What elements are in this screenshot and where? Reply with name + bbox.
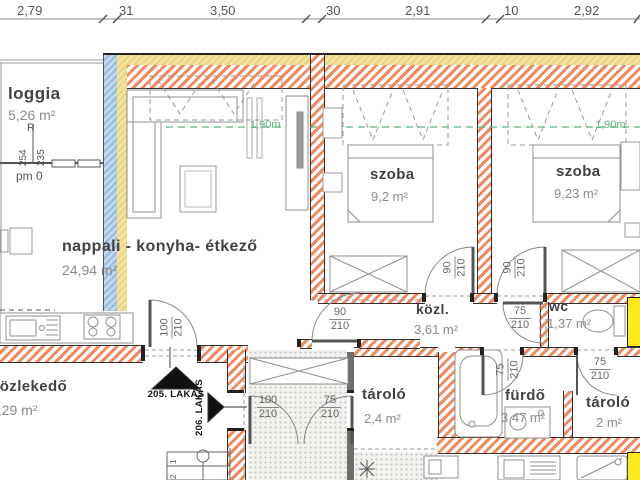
overhead-cabinet-szoba2 — [508, 85, 626, 145]
room-label-kozl: közl. — [416, 301, 449, 317]
height-label-2: 1,90m — [595, 119, 626, 131]
nightstand-szoba1 — [323, 108, 342, 192]
room-area-nappali: 24,94 m² — [62, 262, 117, 278]
dim-10: 10 — [504, 3, 518, 18]
stair-number-1: 1 — [169, 453, 178, 464]
door-label-nappali-kozl: 90210 — [326, 306, 354, 333]
height-label-1: 1,90m — [250, 119, 281, 131]
loggia-railing — [0, 125, 103, 310]
dim-2-92: 2,92 — [574, 3, 599, 18]
arrow-205 — [152, 367, 200, 389]
dim-3-50: 3,50 — [210, 3, 235, 18]
door-label-tarolo2: 75210 — [586, 356, 614, 383]
tv-cabinet — [286, 96, 308, 210]
wardrobe-vestibule — [250, 358, 348, 384]
dim-2-79: 2,79 — [17, 3, 42, 18]
wardrobe-szoba2 — [562, 250, 640, 292]
room-area-loggia: 5,26 m² — [8, 107, 55, 123]
door-label-wc: 75210 — [506, 305, 534, 332]
room-label-wc: wc — [549, 298, 568, 314]
level-235: 235 — [36, 134, 47, 166]
dim-2-91: 2,91 — [405, 3, 430, 18]
dim-31: 31 — [119, 3, 133, 18]
door-label-entry205: 100210 — [159, 308, 186, 348]
room-label-tarolo2: tároló — [586, 394, 630, 411]
door-label-szoba2: 90210 — [502, 248, 529, 288]
room-area-furdo: 3,47 m² — [501, 410, 545, 425]
dim-30: 30 — [326, 3, 340, 18]
room-area-kozl: 3,61 m² — [414, 322, 458, 337]
level-marker-r: R — [27, 122, 35, 134]
room-label-loggia: loggia — [8, 84, 60, 104]
room-area-tarolo1: 2,4 m² — [364, 411, 401, 426]
stair-number-2: 2 — [169, 468, 178, 479]
room-label-szoba1: szoba — [370, 166, 415, 183]
wardrobe-szoba1 — [330, 256, 407, 292]
neighbor-kitchen — [498, 456, 560, 480]
room-label-furdo: fürdő — [505, 387, 545, 404]
room-area-szoba1: 9,2 m² — [371, 189, 408, 204]
neighbor-washer — [577, 456, 627, 480]
room-area-szoba2: 9,23 m² — [554, 186, 598, 201]
door-label-vest-left: 100210 — [254, 394, 282, 421]
room-label-tarolo1: tároló — [362, 386, 406, 403]
room-label-kozlekedo: közlekedő — [0, 378, 67, 395]
door-label-vest-right: 75210 — [316, 394, 344, 421]
room-area-kozlekedo: 6,29 m² — [0, 402, 37, 418]
room-area-tarolo2: 2 m² — [596, 415, 622, 430]
apartment-label-206: 206. LAKÁS — [194, 382, 205, 436]
cooktop — [84, 315, 120, 339]
nightstand-szoba2 — [621, 142, 640, 237]
room-label-szoba2: szoba — [556, 163, 601, 180]
loggia-furniture — [0, 228, 32, 254]
floor-plan: 2,79 31 3,50 30 2,91 10 2,92 loggia 5,26… — [0, 0, 640, 480]
room-area-wc: 1,37 m² — [547, 316, 591, 331]
snowflake-symbol — [359, 460, 375, 478]
door-label-szoba1: 90210 — [442, 248, 469, 288]
level-pm0: pm 0 — [16, 169, 43, 183]
overhead-cabinet-szoba1 — [343, 85, 448, 145]
room-label-nappali: nappali - konyha- étkező — [62, 238, 257, 256]
dimension-line — [0, 15, 640, 23]
small-storage-below — [424, 456, 458, 478]
bed-szoba1 — [348, 145, 433, 222]
bed-szoba2 — [533, 145, 620, 222]
level-254: 254 — [18, 134, 29, 166]
door-label-furdo: 75210 — [495, 350, 522, 390]
